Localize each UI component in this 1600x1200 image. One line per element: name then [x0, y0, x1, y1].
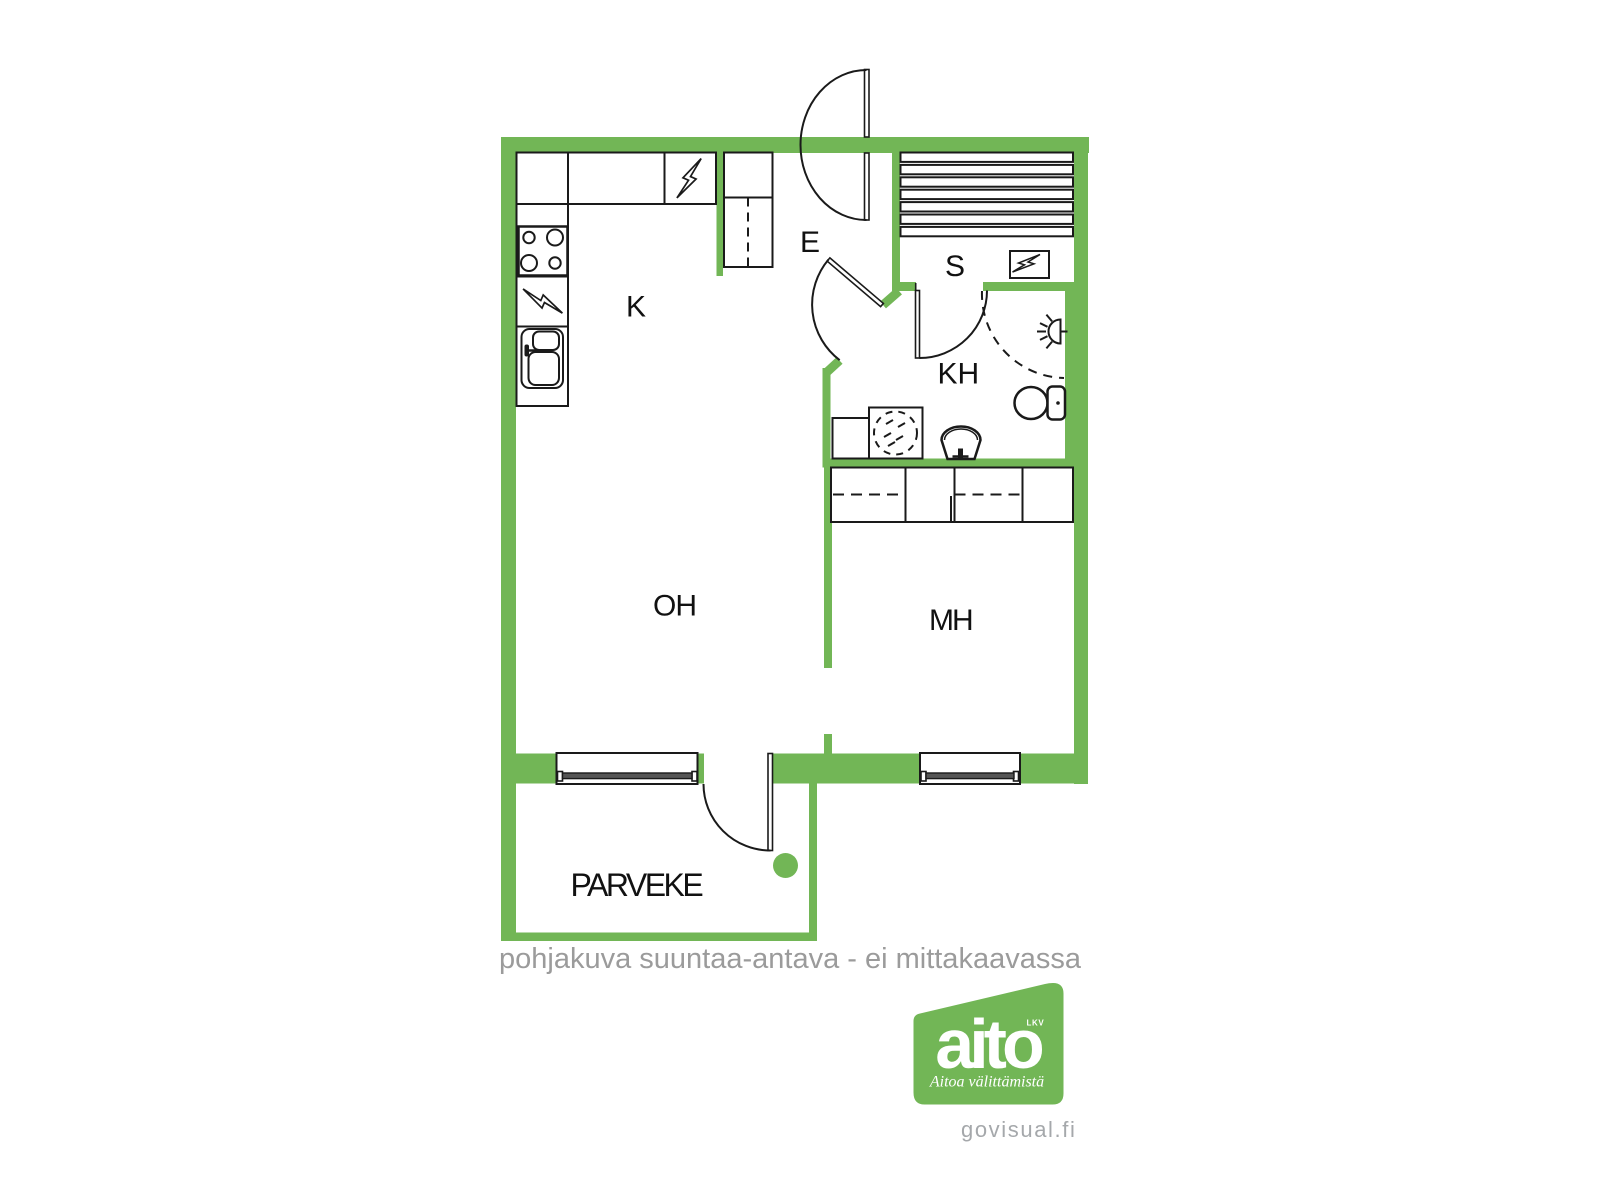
svg-text:Aitoa välittämistä: Aitoa välittämistä	[929, 1074, 1044, 1091]
svg-text:LKV: LKV	[1027, 1019, 1045, 1028]
svg-text:KH: KH	[938, 358, 980, 391]
svg-text:OH: OH	[653, 590, 696, 623]
svg-text:K: K	[626, 291, 646, 324]
svg-text:pohjakuva suuntaa-antava - ei: pohjakuva suuntaa-antava - ei mittakaava…	[499, 943, 1082, 975]
svg-text:E: E	[800, 226, 820, 259]
svg-text:MH: MH	[929, 604, 972, 637]
svg-text:aito: aito	[935, 1005, 1043, 1083]
svg-text:S: S	[945, 250, 965, 283]
svg-text:PARVEKE: PARVEKE	[571, 867, 703, 903]
svg-text:govisual.fi: govisual.fi	[961, 1117, 1076, 1142]
